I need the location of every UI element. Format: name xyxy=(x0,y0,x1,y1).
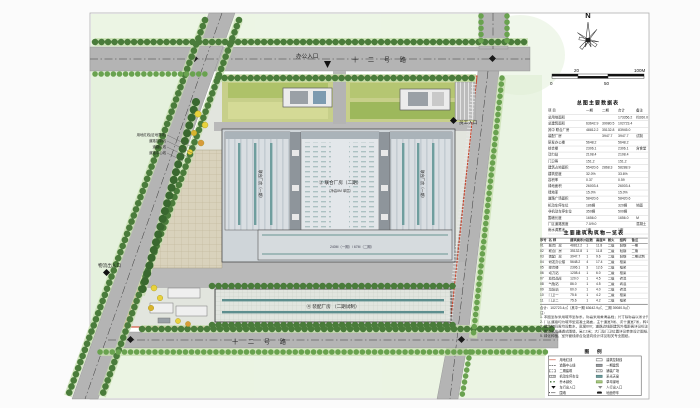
road-redline-label: 道路红线 xyxy=(152,144,166,149)
site-data-table-title: 总图主要数据表 xyxy=(548,99,648,106)
buildings-table-body: 01联合厂房 48812.21 11.8二级 轻钢一期 02联合厂房 35132… xyxy=(540,244,648,305)
legend-title: 图 例 xyxy=(548,348,642,355)
site-plan-sheet: 办公入口 十 二 号 路 十 二 号 路 员工入口 物流出入口 用地红线(征地界… xyxy=(0,0,700,408)
legend-grid: 用地红线 建筑控制线 道路中心线 一期建筑 二期建筑 铺装广场 xyxy=(548,356,642,396)
scale-50: 50 xyxy=(604,81,610,86)
office-zone xyxy=(222,78,475,124)
hall-right-label: 联合厂房（一期） xyxy=(420,170,425,200)
scale-20: 20 xyxy=(574,68,580,73)
site-data-table: 总图主要数据表 项 目一期 二期合计 备注 总用地面积 173356.2 约26… xyxy=(548,99,648,227)
table-row: 11门卫二 75.61 4.2二级 框架 xyxy=(540,299,648,305)
site-data-table-header: 项 目一期 二期合计 备注 xyxy=(548,108,648,115)
office-entrance-label: 办公入口 xyxy=(296,52,318,60)
buildings-table-title: 主要建筑构筑物一览表 xyxy=(540,229,648,236)
connector-dimension-label: 240M（一期）/ 67M（二期） xyxy=(330,244,374,249)
road-bottom-name: 十 二 号 路 xyxy=(232,338,290,346)
hall-left-label: 联合厂房（一期） xyxy=(258,170,263,200)
road-top-name: 十 二 号 路 xyxy=(352,56,410,64)
redline-label: 用地红线(征地界线) xyxy=(137,132,166,137)
road-control-label: 道路控制线 xyxy=(149,138,167,143)
hall-center-sub: （净高8M 单层） xyxy=(327,188,353,193)
assembly-hall-label: ④ 装配厂房 （二期试制） xyxy=(306,303,359,310)
hall-center-label: ② 联合厂房（二期） xyxy=(319,179,362,186)
svg-text:N: N xyxy=(585,11,590,20)
site-data-table-body: 总用地面积 173356.2 约260.0亩 总建筑面积63642.9 3908… xyxy=(548,115,648,234)
scale-100m: 100M xyxy=(634,68,646,73)
buildings-list-table: 主要建筑构筑物一览表 序号名 称 建筑面积㎡层数 高度M耐火 结构备注 01联合… xyxy=(540,229,648,309)
buildings-table-total: 合计：102723.4㎡（其中一期 63642.9㎡、二期 39080.5㎡） xyxy=(540,304,648,311)
logistics-entrance-label: 物流出入口 xyxy=(98,262,121,269)
note-line: 5. 绿化种植、室外管线综合及竖向设计详见相关专业图纸。 xyxy=(540,334,648,339)
road-center-label: 道路中心线 xyxy=(149,150,167,155)
legend: 图 例 用地红线 建筑控制线 道路中心线 一期建筑 二期建筑 xyxy=(548,348,642,408)
